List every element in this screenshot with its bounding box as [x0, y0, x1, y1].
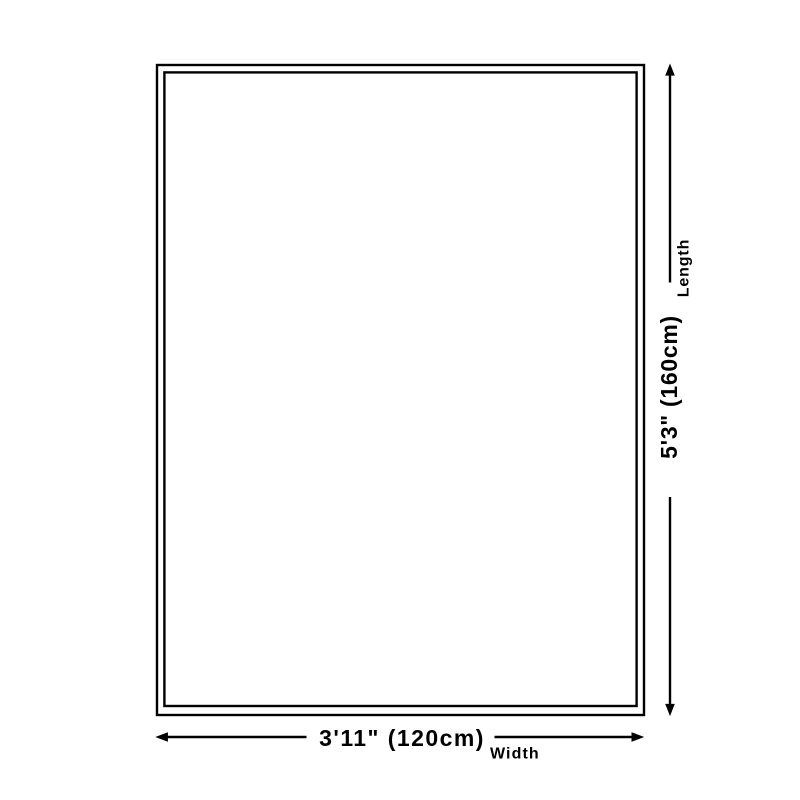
svg-text:3'11" (120cm): 3'11" (120cm) — [319, 725, 485, 751]
svg-text:Width: Width — [490, 745, 540, 762]
svg-text:Length: Length — [676, 239, 693, 297]
svg-text:5'3" (160cm): 5'3" (160cm) — [656, 315, 682, 459]
